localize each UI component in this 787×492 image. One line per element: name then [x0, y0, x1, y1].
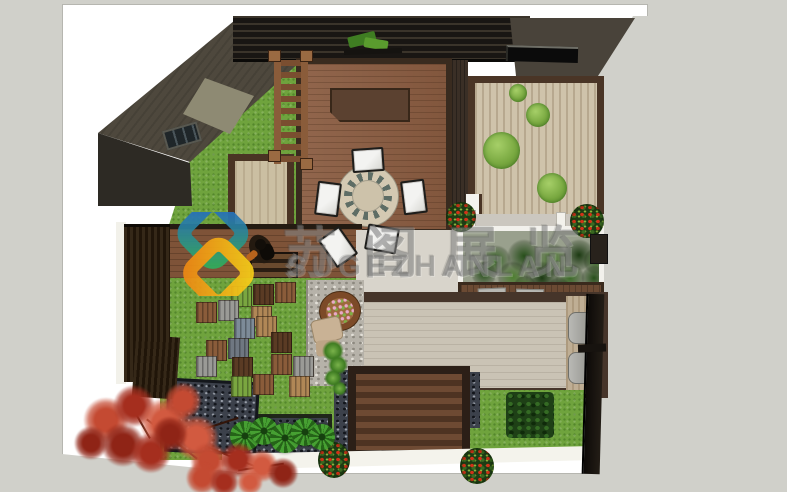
- deck-chair: [351, 147, 385, 173]
- maple-foliage: [234, 466, 266, 492]
- paver-tile: [271, 332, 292, 353]
- maple-foliage: [148, 412, 192, 456]
- maple-foliage: [70, 422, 112, 464]
- maple-foliage: [264, 454, 302, 492]
- paver-tile: [293, 356, 314, 377]
- paver-tile: [232, 357, 253, 378]
- moss-bush: [483, 132, 520, 169]
- paver-tile: [234, 318, 255, 339]
- paver-tile: [275, 282, 296, 303]
- vine-plant: [332, 381, 347, 396]
- generated-layer: [0, 0, 787, 492]
- paver-tile: [289, 376, 310, 397]
- moss-bush: [509, 84, 527, 102]
- paver-tile: [231, 376, 252, 397]
- deck-chair: [318, 226, 359, 269]
- deck-chair: [400, 179, 428, 216]
- paver-tile: [196, 356, 217, 377]
- leafy-plant: [309, 424, 335, 450]
- paver-tile: [253, 374, 274, 395]
- deck-chair: [364, 223, 400, 254]
- paver-tile: [271, 354, 292, 375]
- moss-bush: [537, 173, 567, 203]
- stage: 苏阁展览 SUGEZHANLAN: [0, 0, 787, 492]
- moss-bush: [526, 103, 550, 127]
- brand-logo-icon: [158, 212, 273, 296]
- paver-tile: [196, 302, 217, 323]
- paver-tile: [228, 338, 249, 359]
- deck-chair: [314, 181, 342, 218]
